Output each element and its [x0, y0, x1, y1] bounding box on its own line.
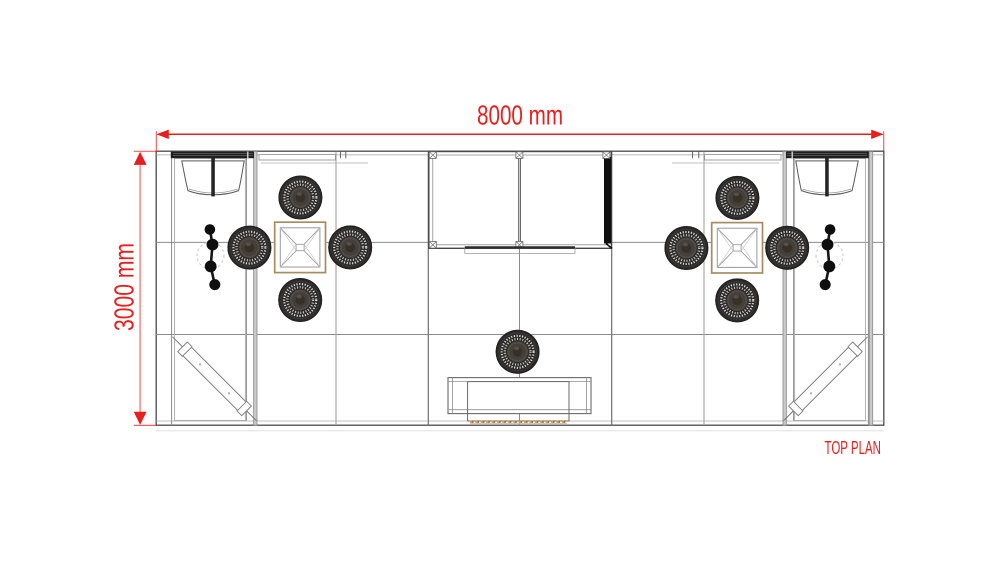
svg-text:8000 mm: 8000 mm	[477, 99, 563, 130]
svg-text:3000 mm: 3000 mm	[109, 243, 140, 331]
svg-text:TOP PLAN: TOP PLAN	[825, 437, 882, 458]
